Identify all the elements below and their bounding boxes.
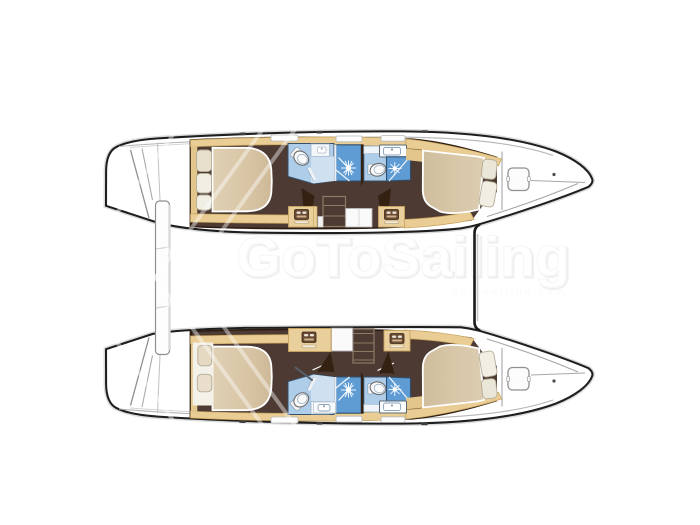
- svg-text:gotosailing.com: gotosailing.com: [452, 287, 567, 298]
